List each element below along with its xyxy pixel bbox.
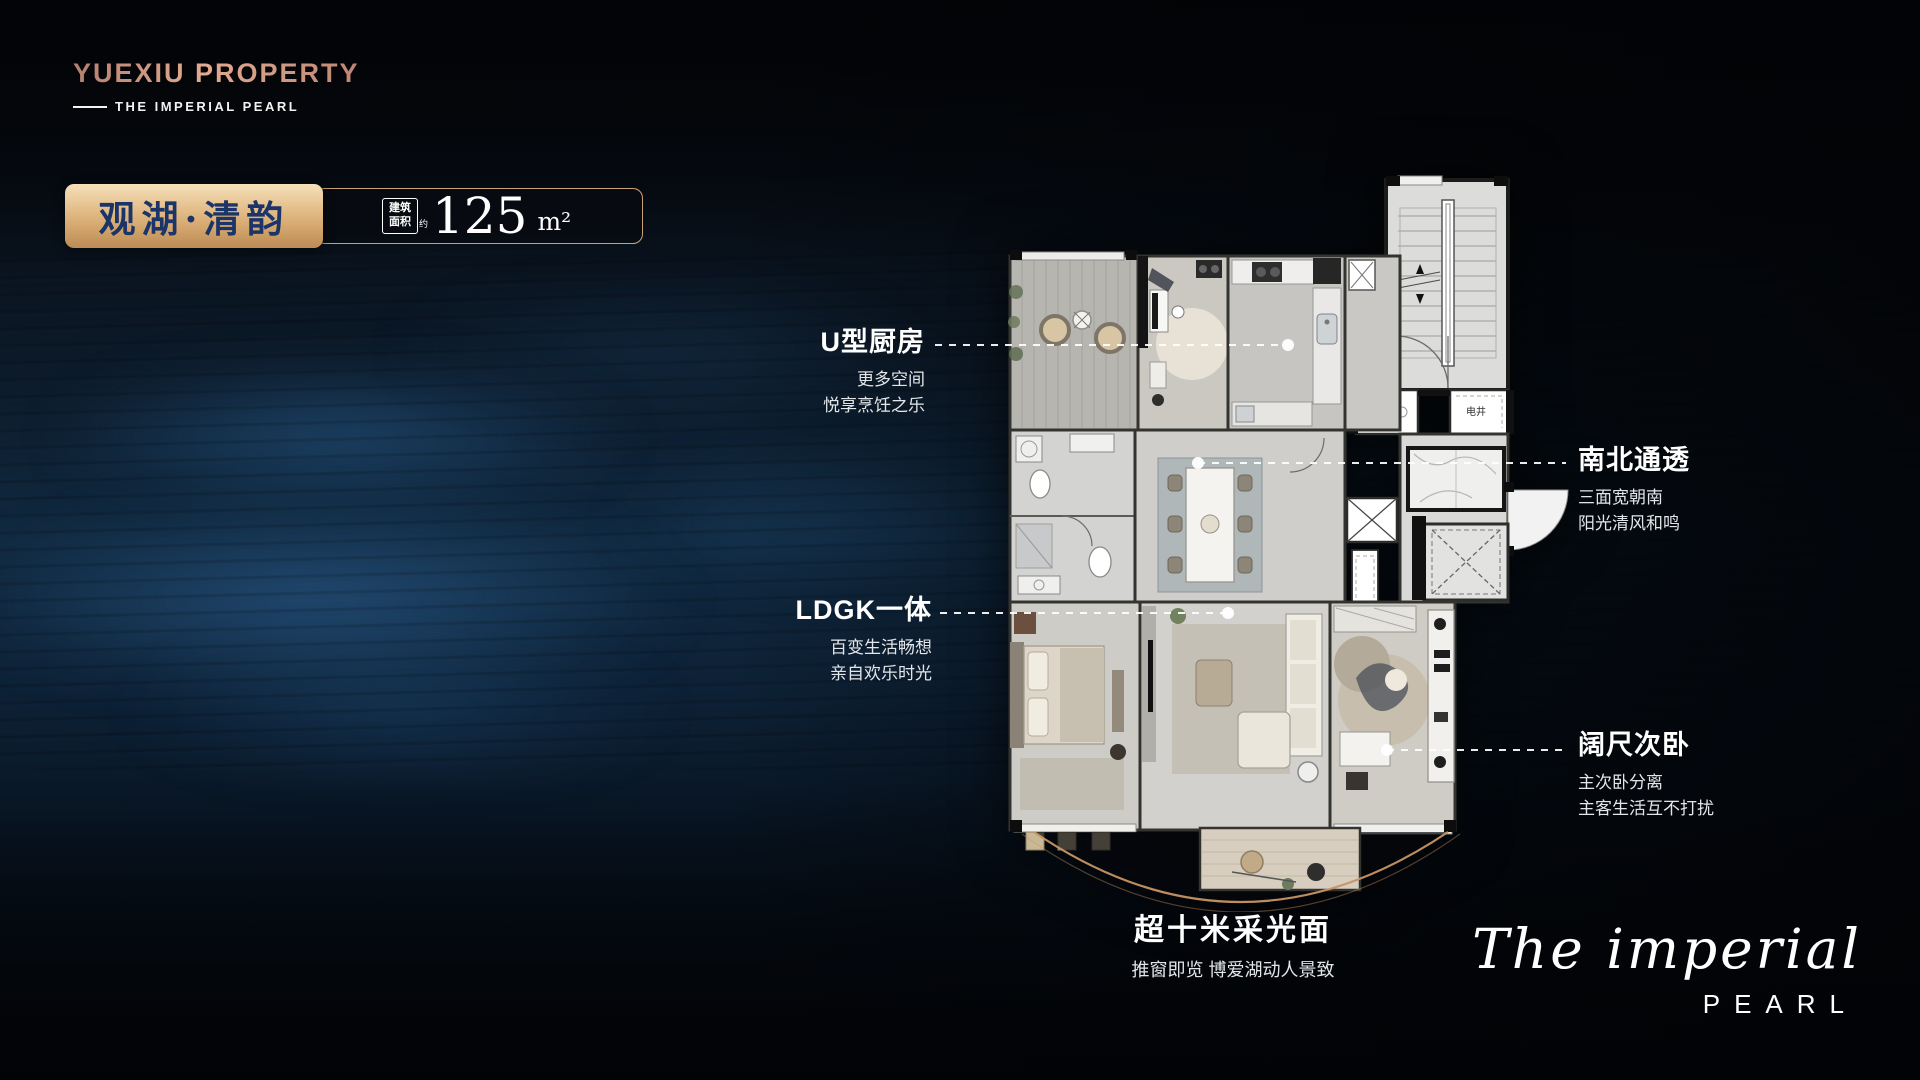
callout-second-bedroom: 阔尺次卧 主次卧分离 主客生活互不打扰	[1578, 731, 1714, 822]
area-label-line1: 建筑	[389, 202, 411, 216]
poster: YUEXIU PROPERTY THE IMPERIAL PEARL 建筑 面积…	[0, 0, 1920, 1080]
area-value: 125	[432, 191, 527, 241]
callout-daylight-line1: 推窗即览 博爱湖动人景致	[1033, 957, 1433, 985]
signature-caps: PEARL	[1472, 989, 1858, 1020]
elevator-shaft	[1412, 516, 1508, 600]
brand-logo: YUEXIU PROPERTY THE IMPERIAL PEARL	[73, 58, 360, 114]
callout-daylight: 超十米采光面 推窗即览 博爱湖动人景致	[1033, 914, 1433, 985]
unit-title-badge: 建筑 面积 约 125 m² 观湖·清韵	[65, 184, 577, 248]
second-bedroom	[1330, 602, 1455, 830]
area-label-line2: 面积	[389, 216, 411, 230]
brand-dash	[73, 106, 107, 108]
master-bedroom	[1010, 602, 1140, 830]
callout-kitchen: U型厨房 更多空间 悦享烹饪之乐	[821, 328, 926, 419]
callout-south-north-title: 南北通透	[1578, 446, 1690, 476]
floor-plan: 水井 电井	[1000, 172, 1580, 912]
callout-kitchen-line1: 更多空间	[821, 367, 926, 393]
callout-south-north-line2: 阳光清风和鸣	[1578, 511, 1690, 537]
unit-area-panel: 建筑 面积 约 125 m²	[315, 188, 643, 244]
callout-kitchen-line2: 悦享烹饪之乐	[821, 393, 926, 419]
signature-script: The imperial	[1472, 922, 1862, 977]
hallway	[1345, 256, 1400, 430]
callout-second-bedroom-line2: 主客生活互不打扰	[1578, 796, 1714, 822]
terrace	[1008, 250, 1138, 430]
unit-name-plate: 观湖·清韵	[65, 184, 323, 248]
living-room	[1140, 602, 1330, 830]
callout-south-north-line1: 三面宽朝南	[1578, 485, 1690, 511]
stairwell	[1386, 176, 1508, 390]
balcony	[1022, 828, 1460, 912]
dining-area	[1135, 430, 1345, 602]
bathroom	[1010, 430, 1135, 602]
callout-kitchen-title: U型厨房	[821, 328, 926, 358]
callout-second-bedroom-title: 阔尺次卧	[1578, 731, 1714, 761]
electric-shaft-label: 电井	[1466, 405, 1486, 418]
area-unit: m²	[537, 207, 571, 236]
callout-ldgk-title: LDGK一体	[796, 596, 933, 626]
area-label-box: 建筑 面积 约	[382, 198, 418, 234]
callout-ldgk: LDGK一体 百变生活畅想 亲自欢乐时光	[796, 596, 933, 687]
brand-subtitle: THE IMPERIAL PEARL	[115, 99, 299, 114]
brand-name: YUEXIU PROPERTY	[73, 58, 360, 89]
signature: The imperial PEARL	[1472, 922, 1862, 1020]
area-approx-label: 约	[419, 219, 428, 230]
callout-ldgk-line1: 百变生活畅想	[796, 635, 933, 661]
callout-second-bedroom-line1: 主次卧分离	[1578, 770, 1714, 796]
kitchen	[1228, 256, 1345, 430]
callout-daylight-title: 超十米采光面	[1033, 914, 1433, 947]
callout-ldgk-line2: 亲自欢乐时光	[796, 661, 933, 687]
study-room	[1138, 256, 1228, 430]
unit-name: 观湖·清韵	[99, 189, 290, 243]
callout-south-north: 南北通透 三面宽朝南 阳光清风和鸣	[1578, 446, 1690, 537]
